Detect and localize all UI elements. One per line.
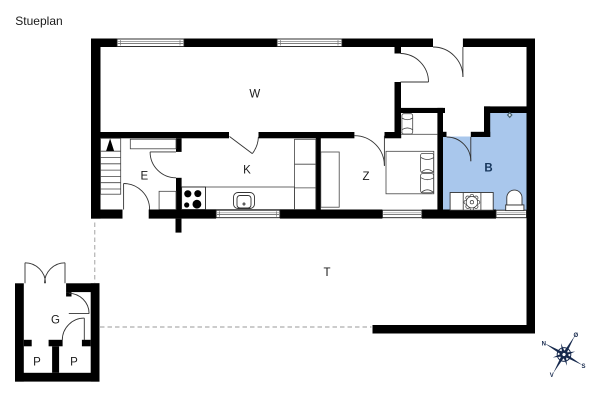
svg-text:P: P — [70, 357, 78, 369]
svg-text:V: V — [550, 373, 554, 379]
svg-text:B: B — [484, 163, 492, 175]
svg-text:E: E — [140, 171, 148, 183]
svg-text:Z: Z — [362, 171, 369, 183]
svg-text:K: K — [243, 165, 251, 177]
svg-text:Stueplan: Stueplan — [15, 14, 62, 28]
svg-text:P: P — [33, 357, 41, 369]
svg-text:N: N — [542, 342, 546, 348]
svg-text:G: G — [51, 315, 60, 327]
svg-text:T: T — [323, 267, 330, 279]
svg-text:Ø: Ø — [573, 333, 578, 339]
svg-text:W: W — [249, 89, 260, 101]
svg-text:S: S — [581, 364, 585, 370]
